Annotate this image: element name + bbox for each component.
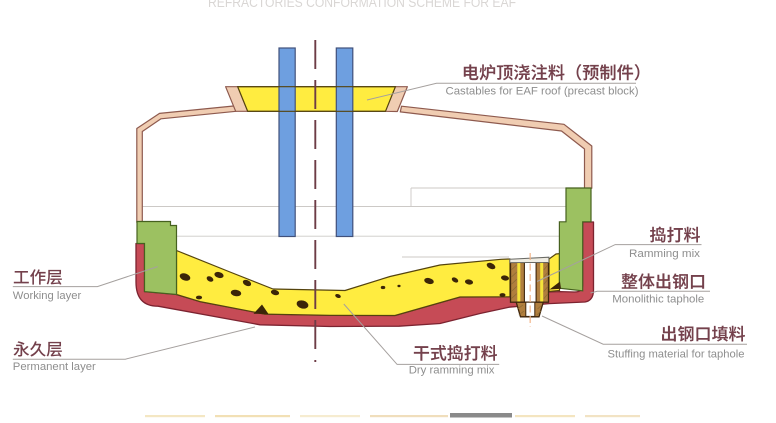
svg-text:Permanent layer: Permanent layer (13, 361, 96, 373)
svg-text:REFRACTORIES CONFORMATION SCHE: REFRACTORIES CONFORMATION SCHEME FOR EAF (208, 0, 516, 10)
svg-text:Monolithic taphole: Monolithic taphole (612, 294, 704, 306)
svg-text:Working layer: Working layer (13, 290, 82, 302)
svg-text:Dry ramming mix: Dry ramming mix (409, 365, 495, 377)
svg-text:Ramming mix: Ramming mix (629, 248, 700, 260)
svg-text:Stuffing material for taphole: Stuffing material for taphole (608, 348, 745, 360)
svg-text:Castables for EAF roof (precas: Castables for EAF roof (precast block) (446, 86, 639, 98)
